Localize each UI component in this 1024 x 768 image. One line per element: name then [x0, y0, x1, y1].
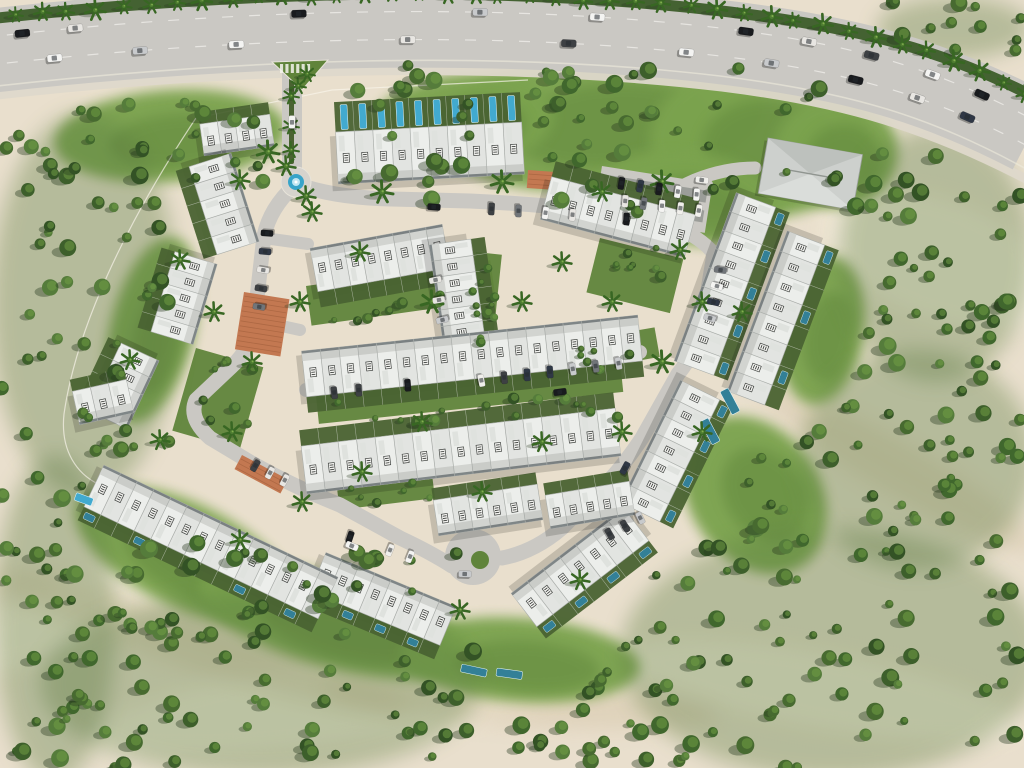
- aerial-masterplan-render: [0, 0, 1024, 768]
- light-overlay: [0, 0, 1024, 768]
- masterplan-svg: [0, 0, 1024, 768]
- overlay-layer: [0, 0, 1024, 768]
